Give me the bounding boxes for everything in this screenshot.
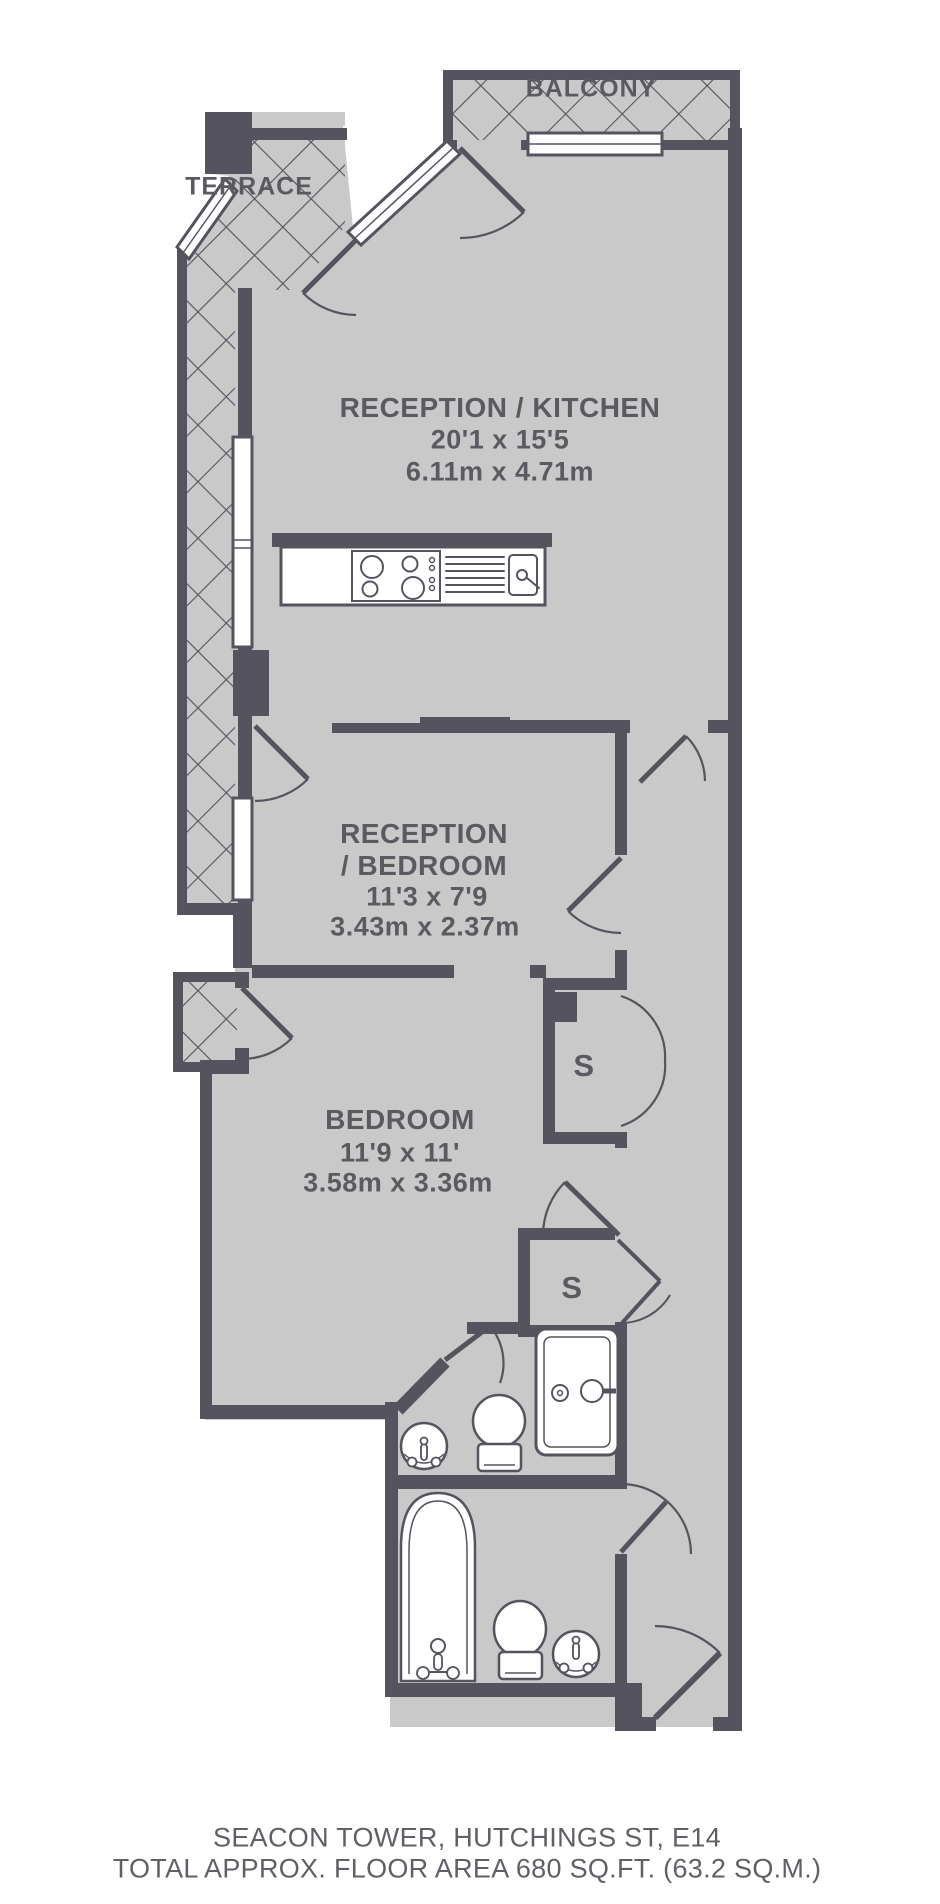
shower-icon	[536, 1329, 618, 1455]
terrace-lower-hatch	[183, 982, 237, 1062]
basin-icon	[553, 1631, 599, 1677]
bedroom-imperial: 11'9 x 11'	[340, 1138, 460, 1169]
reception-kitchen-imperial: 20'1 x 15'5	[431, 425, 569, 456]
storage2-label: S	[561, 1270, 582, 1306]
storage1-label: S	[573, 1048, 594, 1084]
toilet-icon	[473, 1395, 525, 1471]
terrace-label: TERRACE	[185, 173, 313, 202]
reception-bedroom-metric: 3.43m x 2.37m	[330, 912, 520, 943]
hob-icon	[352, 551, 440, 601]
toilet-icon	[494, 1601, 546, 1679]
reception-kitchen-metric: 6.11m x 4.71m	[406, 457, 594, 488]
balcony-window	[528, 133, 662, 155]
balcony-door-gap	[457, 140, 521, 150]
footer-address: SEACON TOWER, HUTCHINGS ST, E14	[213, 1823, 721, 1854]
footer-area: TOTAL APPROX. FLOOR AREA 680 SQ.FT. (63.…	[113, 1854, 822, 1885]
reception-bedroom-title-line2: / BEDROOM	[341, 850, 507, 882]
reception-bedroom-title-line1: RECEPTION	[340, 818, 508, 850]
reception-bedroom-imperial: 11'3 x 7'9	[366, 882, 487, 913]
reception-kitchen-title: RECEPTION / KITCHEN	[340, 392, 661, 424]
bedroom-metric: 3.58m x 3.36m	[303, 1168, 493, 1199]
terrace-window-upper	[233, 437, 252, 647]
kitchen-counter	[281, 547, 545, 605]
terrace-strip-hatch	[187, 255, 235, 905]
basin-icon	[401, 1423, 447, 1469]
bedroom-title: BEDROOM	[325, 1104, 475, 1136]
floorplan-drawing	[0, 0, 940, 1904]
terrace-window-lower	[233, 798, 252, 900]
bathtub-icon	[401, 1493, 475, 1681]
balcony-label: BALCONY	[526, 75, 657, 104]
floorplan: BALCONY TERRACE RECEPTION / KITCHEN 20'1…	[0, 0, 940, 1904]
